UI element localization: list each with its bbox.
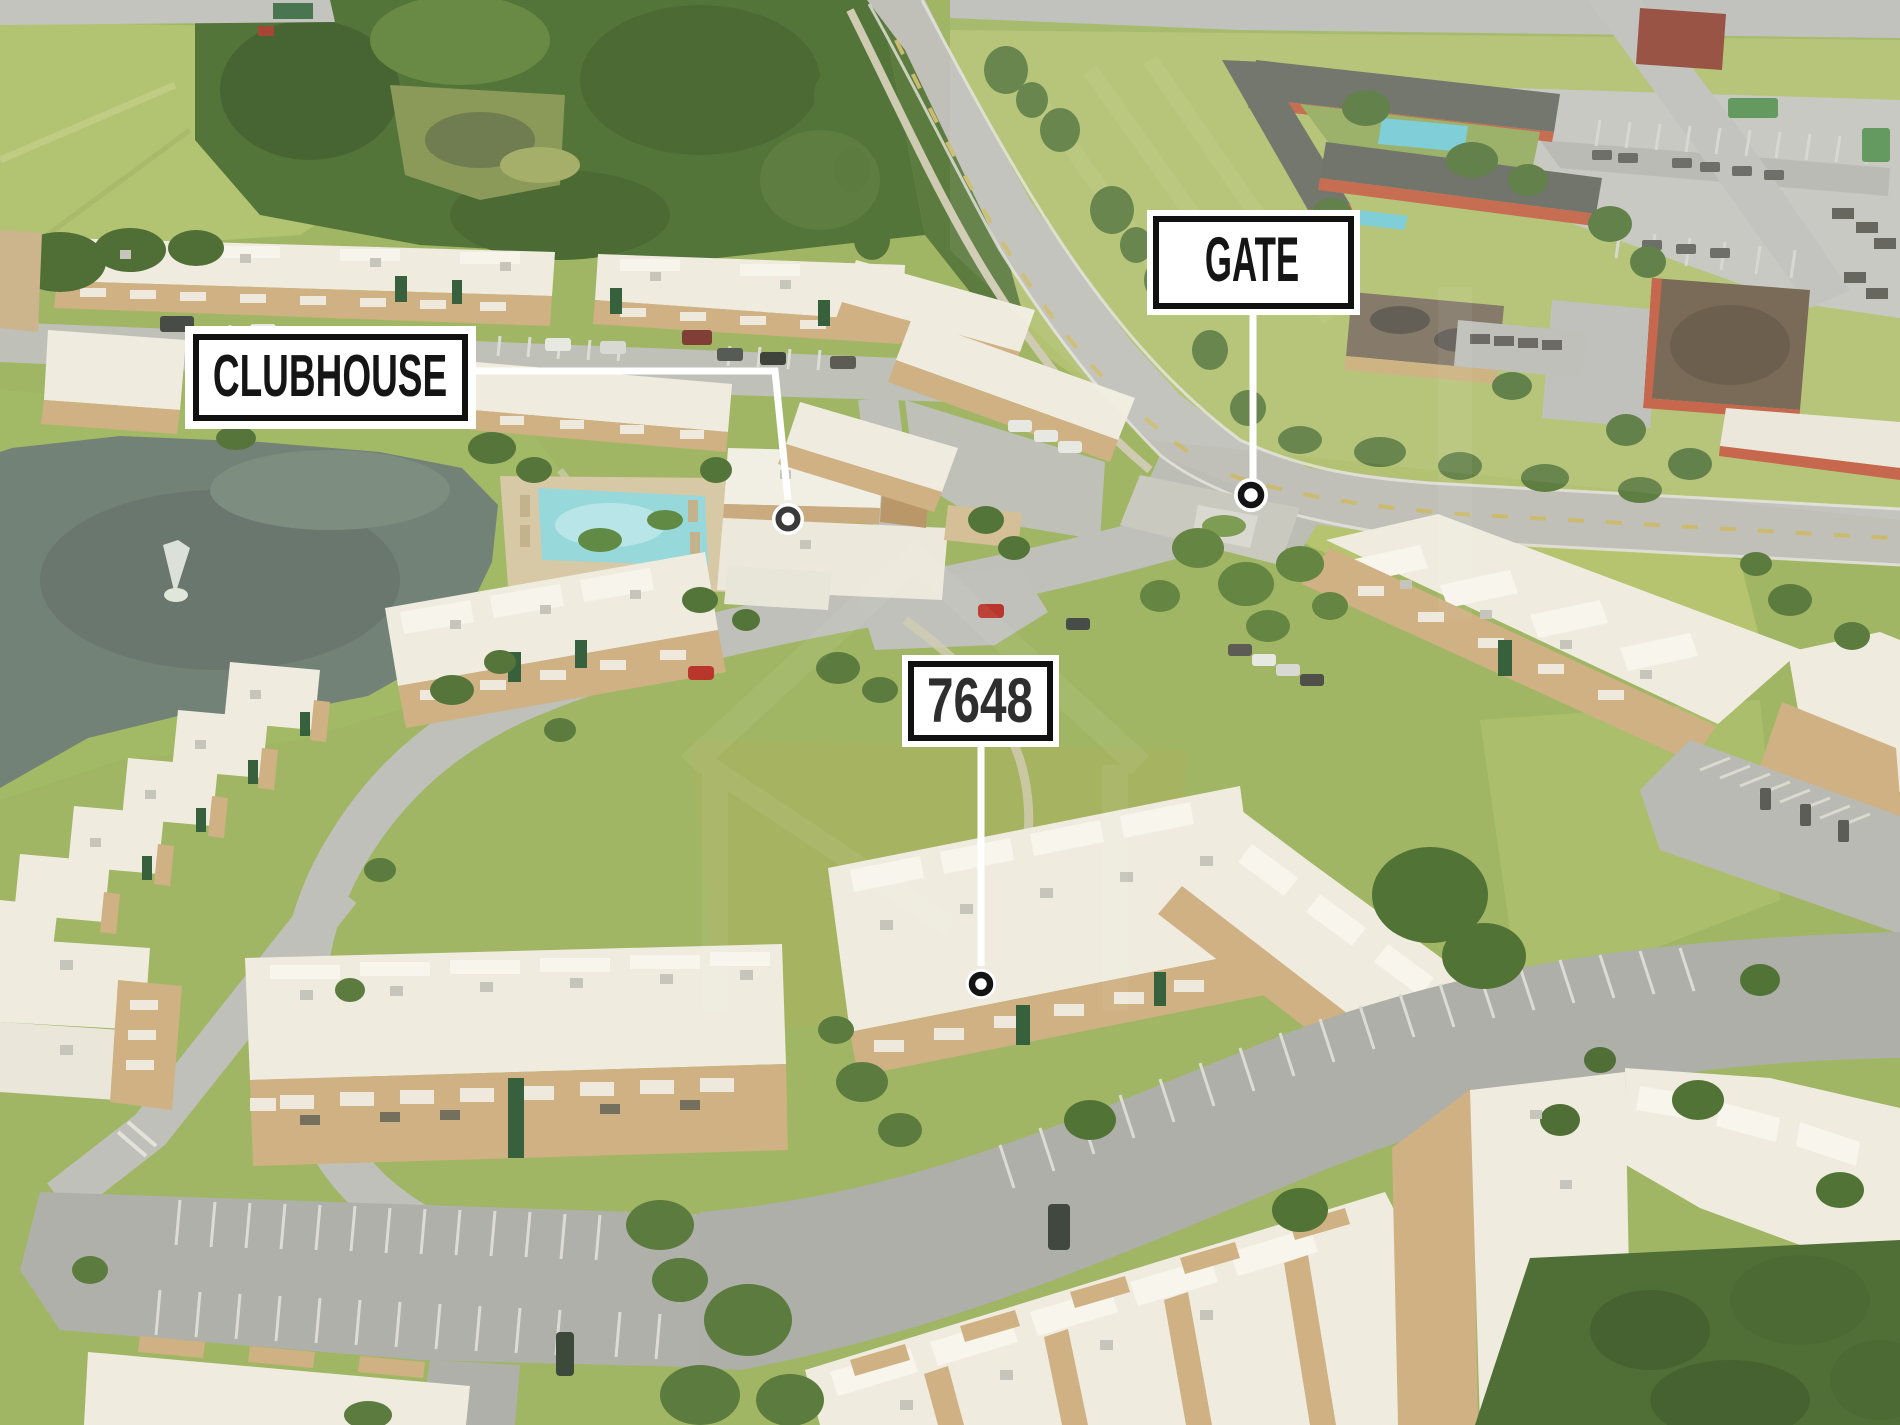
svg-text:GATE: GATE bbox=[1205, 224, 1299, 295]
svg-text:7648: 7648 bbox=[927, 664, 1033, 735]
svg-text:CLUBHOUSE: CLUBHOUSE bbox=[213, 343, 447, 409]
